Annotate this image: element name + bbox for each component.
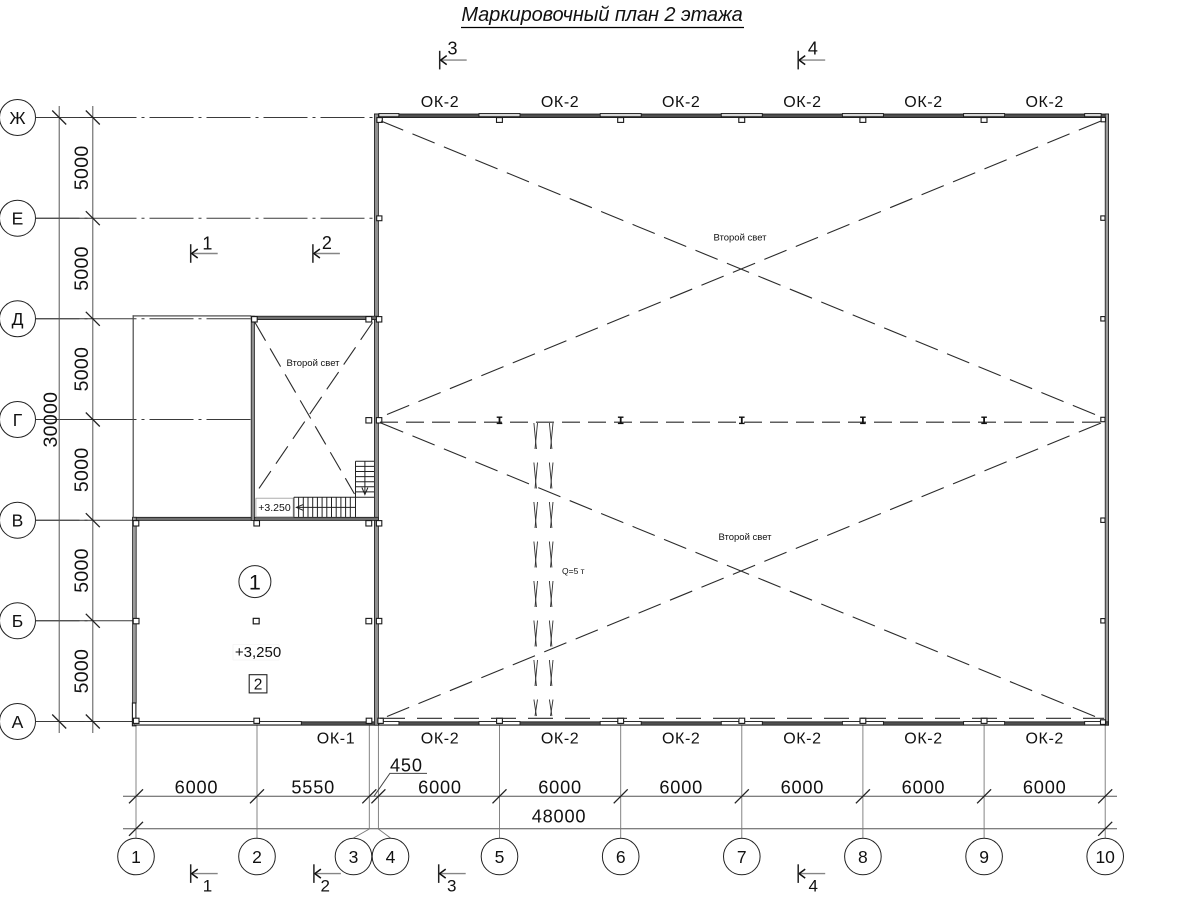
svg-text:5000: 5000 — [71, 548, 93, 593]
svg-text:450: 450 — [390, 755, 423, 775]
svg-text:5000: 5000 — [71, 146, 93, 191]
svg-text:3: 3 — [448, 39, 458, 59]
svg-text:5000: 5000 — [71, 246, 93, 291]
svg-text:6: 6 — [616, 847, 626, 867]
svg-text:30000: 30000 — [40, 392, 62, 448]
svg-text:5000: 5000 — [71, 347, 93, 392]
svg-text:Второй свет: Второй свет — [286, 358, 340, 369]
svg-text:4: 4 — [809, 877, 818, 896]
svg-text:2: 2 — [254, 676, 263, 693]
svg-text:48000: 48000 — [532, 807, 587, 827]
svg-text:ОК-2: ОК-2 — [904, 731, 942, 748]
svg-text:Маркировочный план 2 этажа: Маркировочный план 2 этажа — [461, 4, 742, 26]
svg-text:2: 2 — [322, 233, 332, 253]
svg-text:6000: 6000 — [1023, 777, 1067, 797]
svg-text:8: 8 — [858, 847, 868, 867]
svg-text:3: 3 — [447, 877, 456, 896]
svg-text:ОК-2: ОК-2 — [541, 94, 579, 111]
svg-text:9: 9 — [979, 847, 989, 867]
svg-text:Ж: Ж — [9, 108, 25, 128]
svg-text:6000: 6000 — [418, 777, 462, 797]
svg-text:2: 2 — [321, 877, 330, 896]
svg-text:Е: Е — [12, 209, 24, 229]
svg-text:ОК-2: ОК-2 — [904, 94, 942, 111]
svg-text:4: 4 — [808, 39, 818, 59]
svg-text:6000: 6000 — [902, 777, 946, 797]
svg-text:+3.250: +3.250 — [258, 502, 291, 514]
svg-text:6000: 6000 — [538, 777, 582, 797]
svg-text:Д: Д — [12, 309, 24, 329]
svg-text:1: 1 — [249, 570, 261, 594]
svg-text:ОК-2: ОК-2 — [1025, 731, 1063, 748]
svg-text:ОК-2: ОК-2 — [1025, 94, 1063, 111]
svg-text:4: 4 — [386, 847, 396, 867]
svg-text:А: А — [12, 712, 24, 732]
svg-text:6000: 6000 — [659, 777, 703, 797]
svg-text:5000: 5000 — [71, 649, 93, 694]
svg-text:ОК-2: ОК-2 — [421, 731, 459, 748]
svg-text:6000: 6000 — [781, 777, 825, 797]
svg-text:1: 1 — [202, 234, 212, 254]
svg-text:ОК-2: ОК-2 — [662, 731, 700, 748]
svg-text:Г: Г — [13, 410, 23, 430]
svg-text:Второй свет: Второй свет — [713, 233, 767, 244]
svg-text:10: 10 — [1095, 847, 1115, 867]
svg-text:3: 3 — [349, 847, 359, 867]
svg-text:Б: Б — [12, 611, 23, 631]
svg-text:Второй свет: Второй свет — [718, 532, 772, 543]
svg-text:ОК-2: ОК-2 — [421, 94, 459, 111]
svg-text:+3,250: +3,250 — [235, 644, 281, 661]
svg-text:7: 7 — [737, 847, 747, 867]
svg-text:5: 5 — [495, 847, 505, 867]
svg-text:1: 1 — [131, 847, 141, 867]
svg-text:5550: 5550 — [291, 777, 335, 797]
svg-text:ОК-2: ОК-2 — [783, 731, 821, 748]
svg-text:ОК-1: ОК-1 — [317, 731, 355, 748]
svg-text:6000: 6000 — [175, 777, 219, 797]
svg-text:В: В — [12, 511, 24, 531]
svg-text:1: 1 — [203, 877, 212, 896]
svg-text:ОК-2: ОК-2 — [662, 94, 700, 111]
svg-text:ОК-2: ОК-2 — [783, 94, 821, 111]
svg-text:ОК-2: ОК-2 — [541, 731, 579, 748]
svg-text:2: 2 — [252, 847, 262, 867]
svg-text:5000: 5000 — [71, 448, 93, 493]
svg-text:Q=5 т: Q=5 т — [562, 566, 585, 576]
